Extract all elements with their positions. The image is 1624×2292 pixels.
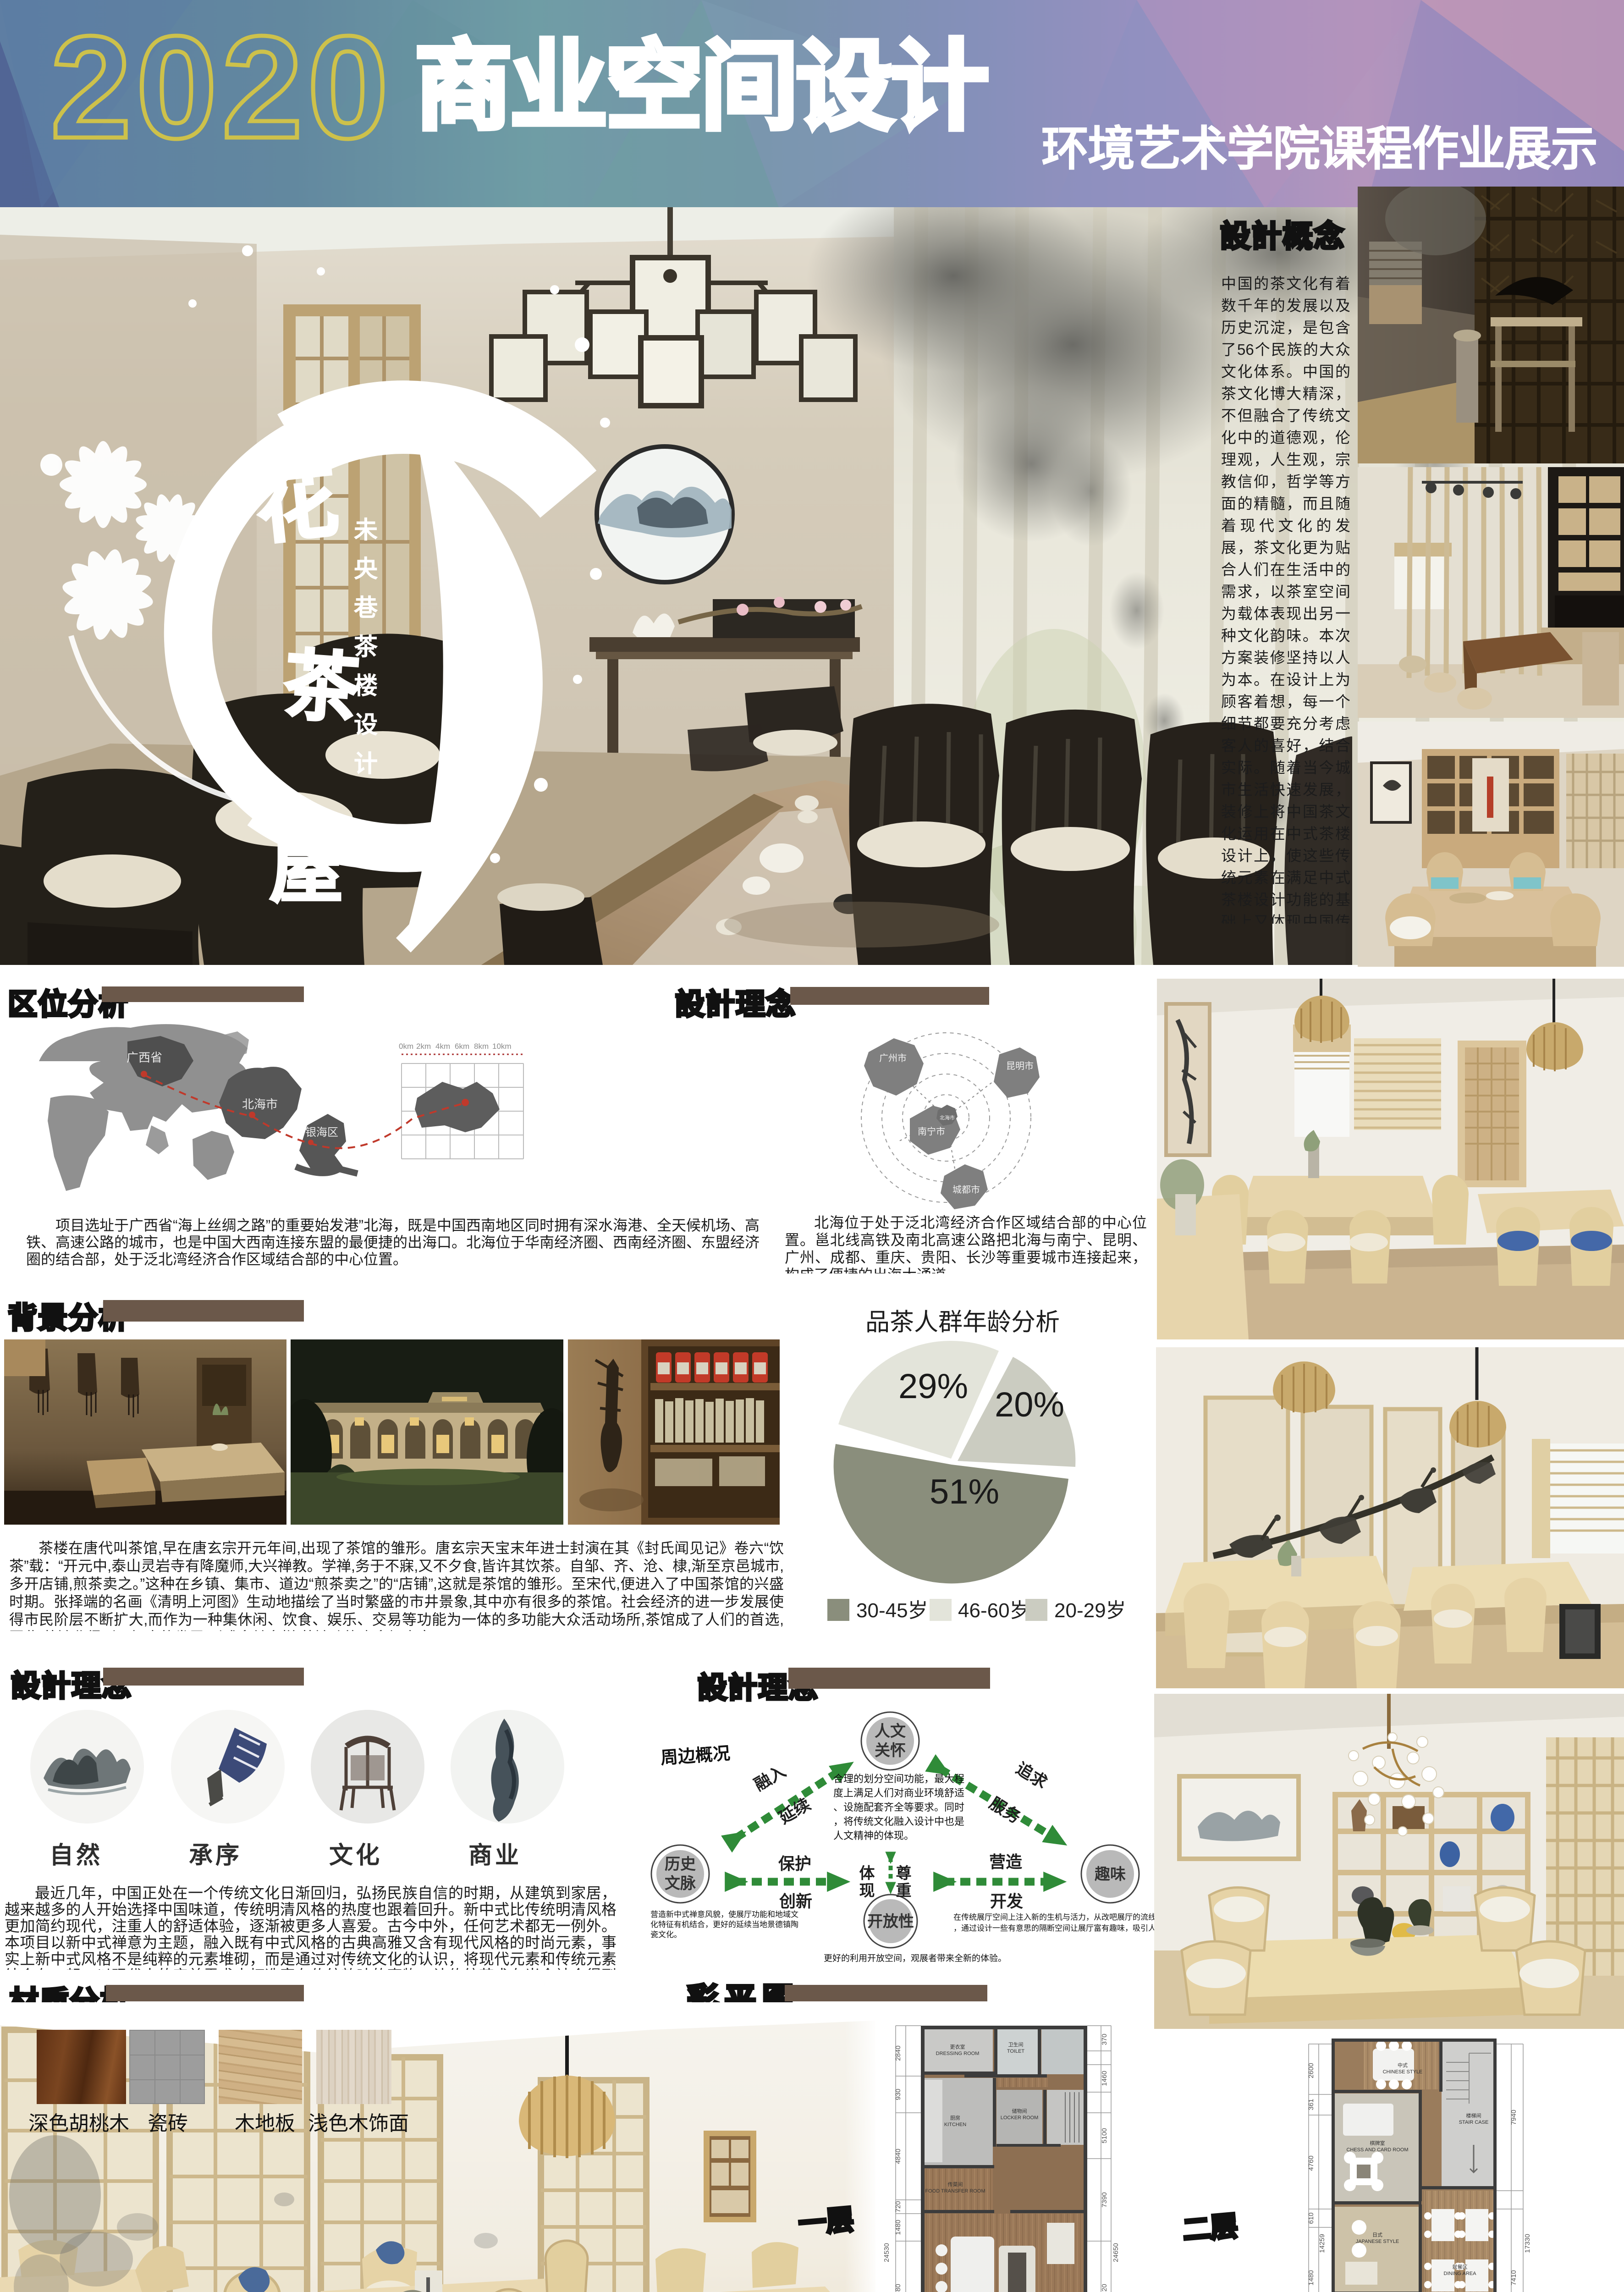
svg-text:46-60岁: 46-60岁 (958, 1599, 1030, 1622)
svg-text:24650: 24650 (1112, 2243, 1120, 2262)
svg-text:品茶人群年龄分析: 品茶人群年龄分析 (865, 1309, 1060, 1336)
svg-text:7940: 7940 (1510, 2110, 1518, 2125)
svg-text:日式: 日式 (1372, 2232, 1382, 2238)
svg-text:，将传统文化融入设计中也是: ，将传统文化融入设计中也是 (833, 1816, 964, 1827)
svg-text:20-29岁: 20-29岁 (1054, 1599, 1126, 1622)
svg-text:STAIR CASE: STAIR CASE (1459, 2120, 1489, 2125)
svg-text:17330: 17330 (1524, 2234, 1531, 2253)
svg-text:营造新中式禅意风貌，使展厅功能和地域文: 营造新中式禅意风貌，使展厅功能和地域文 (650, 1910, 798, 1919)
svg-text:610: 610 (1307, 2212, 1315, 2224)
svg-text:2840: 2840 (894, 2045, 902, 2061)
svg-text:创新: 创新 (779, 1892, 812, 1911)
svg-text:10km: 10km (492, 1042, 512, 1051)
svg-text:城都市: 城都市 (952, 1185, 980, 1195)
svg-text:720: 720 (894, 2201, 902, 2212)
svg-text:更衣室: 更衣室 (950, 2044, 965, 2050)
svg-text:广西省: 广西省 (127, 1051, 162, 1064)
svg-text:融入: 融入 (751, 1762, 789, 1795)
svg-text:历史: 历史 (665, 1856, 696, 1873)
svg-text:0km: 0km (399, 1042, 413, 1051)
svg-text:营造: 营造 (989, 1852, 1022, 1871)
svg-text:14259: 14259 (1318, 2234, 1326, 2253)
svg-text:51%: 51% (930, 1472, 999, 1511)
svg-text:FOOD TRANSFER ROOM: FOOD TRANSFER ROOM (925, 2188, 985, 2194)
svg-text:瓷文化。: 瓷文化。 (650, 1930, 682, 1939)
svg-text:中式: 中式 (1398, 2062, 1408, 2068)
svg-text:、设施配套齐全等要求。同时: 、设施配套齐全等要求。同时 (833, 1802, 964, 1813)
svg-text:在传统展厅空间上注入新的生机与活力，从改吧展厅的流线开始: 在传统展厅空间上注入新的生机与活力，从改吧展厅的流线开始 (953, 1913, 1155, 1922)
svg-text:追求: 追求 (1013, 1758, 1051, 1792)
svg-text:北海市: 北海市 (242, 1097, 278, 1111)
svg-text:5680: 5680 (894, 2284, 902, 2292)
svg-text:2020: 2020 (50, 6, 393, 169)
svg-text:，通过设计一些有意思的隔断空间让展厅富有趣味，吸引人流。: ，通过设计一些有意思的隔断空间让展厅富有趣味，吸引人流。 (953, 1924, 1155, 1933)
svg-text:8km: 8km (474, 1042, 489, 1051)
svg-text:厨房: 厨房 (950, 2115, 960, 2121)
svg-text:DINING AREA: DINING AREA (1444, 2271, 1477, 2276)
svg-text:度上满足人们对商业环境舒适: 度上满足人们对商业环境舒适 (833, 1787, 964, 1799)
svg-text:银海区: 银海区 (305, 1126, 338, 1139)
svg-text:传菜间: 传菜间 (948, 2182, 963, 2187)
svg-text:JAPANESE STYLE: JAPANESE STYLE (1356, 2239, 1399, 2244)
svg-text:370: 370 (1101, 2033, 1108, 2045)
svg-text:广州市: 广州市 (879, 1053, 907, 1063)
svg-text:1420: 1420 (1101, 2284, 1108, 2292)
svg-text:29%: 29% (898, 1367, 968, 1406)
svg-text:商业空间设计: 商业空间设计 (415, 32, 987, 141)
svg-text:合理的划分空间功能，最大程: 合理的划分空间功能，最大程 (833, 1773, 964, 1785)
svg-text:DRESSING ROOM: DRESSING ROOM (936, 2051, 980, 2056)
svg-text:CHESS AND CARD ROOM: CHESS AND CARD ROOM (1346, 2147, 1408, 2153)
svg-text:CHINESE STYLE: CHINESE STYLE (1383, 2069, 1423, 2075)
svg-text:7390: 7390 (1101, 2192, 1108, 2207)
svg-text:开放性: 开放性 (867, 1913, 914, 1930)
svg-text:LOCKER ROOM: LOCKER ROOM (1001, 2115, 1039, 2121)
svg-text:更好的利用开放空间，观展者带来全新的体验。: 更好的利用开放空间，观展者带来全新的体验。 (824, 1953, 1007, 1963)
svg-text:1480: 1480 (894, 2220, 902, 2235)
svg-text:尊重: 尊重 (893, 1865, 911, 1900)
svg-text:储物间: 储物间 (1012, 2108, 1027, 2114)
svg-text:TOILET: TOILET (1007, 2049, 1025, 2054)
svg-text:人文: 人文 (875, 1723, 906, 1740)
svg-text:24530: 24530 (883, 2243, 891, 2262)
svg-text:开发: 开发 (990, 1892, 1023, 1911)
svg-text:30-45岁: 30-45岁 (856, 1599, 928, 1622)
svg-text:化特征有机结合，更好的延续当地景德镇陶: 化特征有机结合，更好的延续当地景德镇陶 (650, 1920, 798, 1929)
svg-text:1460: 1460 (1101, 2071, 1108, 2086)
svg-text:保护: 保护 (778, 1854, 811, 1873)
svg-text:昆明市: 昆明市 (1006, 1061, 1034, 1071)
svg-text:服务: 服务 (986, 1793, 1024, 1827)
svg-text:周边概况: 周边概况 (660, 1744, 731, 1768)
svg-text:2600: 2600 (1307, 2063, 1315, 2078)
svg-text:2km: 2km (416, 1042, 431, 1051)
svg-text:人文精神的体现。: 人文精神的体现。 (833, 1830, 914, 1841)
svg-text:361: 361 (1307, 2099, 1315, 2110)
svg-text:楼梯间: 楼梯间 (1466, 2112, 1481, 2119)
svg-text:930: 930 (894, 2088, 902, 2100)
svg-text:4760: 4760 (1307, 2155, 1315, 2171)
svg-text:环境艺术学院课程作业展示: 环境艺术学院课程作业展示 (1041, 122, 1597, 175)
svg-text:体现: 体现 (857, 1865, 875, 1900)
svg-text:KITCHEN: KITCHEN (944, 2122, 966, 2127)
svg-text:4km: 4km (435, 1042, 450, 1051)
svg-text:棋牌室: 棋牌室 (1370, 2140, 1385, 2146)
svg-text:20%: 20% (995, 1385, 1064, 1424)
svg-text:6km: 6km (455, 1042, 469, 1051)
svg-text:就餐区: 就餐区 (1453, 2264, 1468, 2270)
svg-text:北海市: 北海市 (940, 1114, 955, 1121)
svg-text:趣味: 趣味 (1095, 1866, 1126, 1883)
svg-text:1480: 1480 (1307, 2270, 1315, 2285)
svg-text:南宁市: 南宁市 (918, 1126, 945, 1137)
svg-text:文脉: 文脉 (665, 1875, 696, 1892)
svg-text:4840: 4840 (894, 2149, 902, 2164)
svg-text:5100: 5100 (1101, 2128, 1108, 2143)
svg-text:关怀: 关怀 (875, 1742, 906, 1759)
svg-text:卫生间: 卫生间 (1008, 2041, 1024, 2048)
svg-text:7410: 7410 (1510, 2270, 1518, 2285)
